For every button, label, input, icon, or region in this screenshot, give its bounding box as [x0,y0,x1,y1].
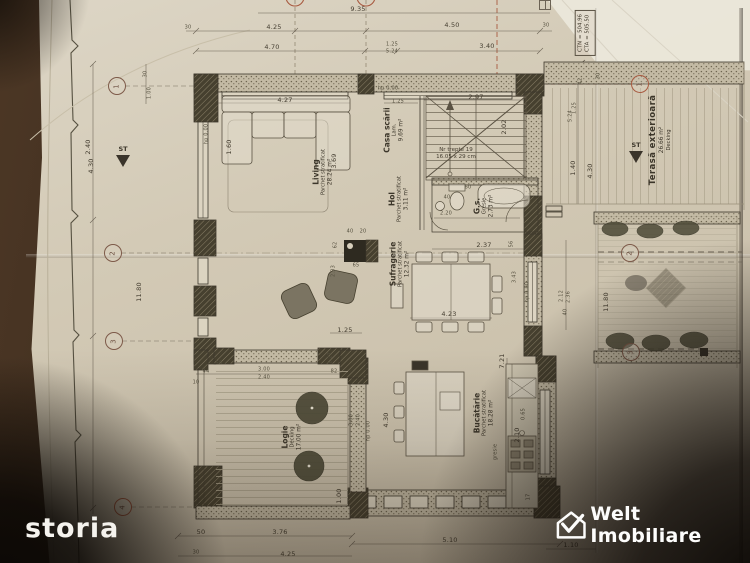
storia-logo: storia [25,513,119,544]
welt-imobiliare-logo: Welt Imobiliare [556,503,750,547]
shadow-top-left [0,0,750,563]
welt-house-check-icon [556,510,586,540]
welt-logo-text: Welt Imobiliare [590,503,750,547]
floor-plan-photo: 9.35 30 4.25 4.50 30 4.70 1.25 5.24 3.40… [0,0,750,563]
storia-logo-text: storia [25,513,119,544]
